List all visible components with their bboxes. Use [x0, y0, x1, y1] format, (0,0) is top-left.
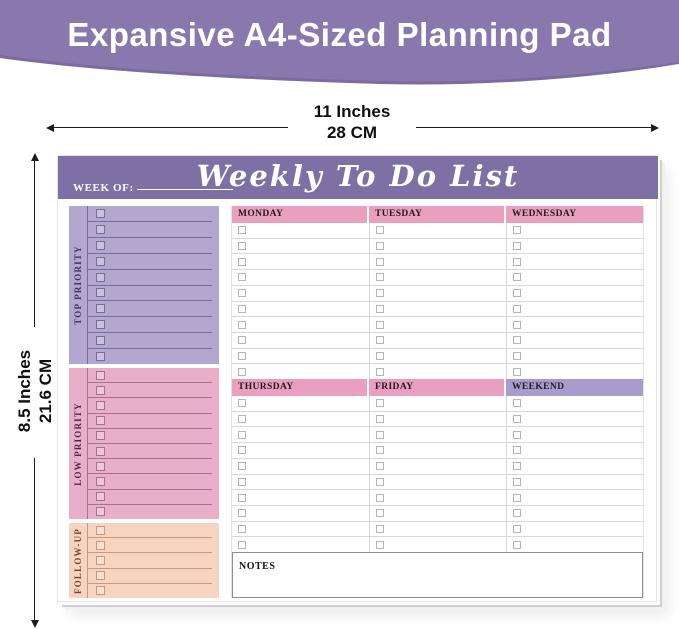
checkbox-icon [513, 242, 521, 250]
day-column-weekend: WEEKEND [506, 379, 643, 552]
checklist-row [232, 396, 369, 412]
checklist-row [507, 396, 643, 412]
checkbox-icon [513, 446, 521, 454]
checkbox-icon [238, 258, 246, 266]
weekend-rows [506, 396, 643, 552]
height-dimension-label: 8.5 Inches 21.6 CM [14, 326, 56, 456]
checkbox-icon [96, 571, 105, 580]
checklist-row [232, 223, 369, 239]
checklist-row [88, 349, 212, 364]
checklist-row [507, 412, 643, 428]
arrowhead-up-icon [31, 153, 39, 161]
checkbox-icon [96, 462, 105, 471]
checklist-row [370, 506, 506, 522]
week-grid: MONDAY TUESDAY WEDNESDAY THURSDAY [231, 206, 644, 598]
checklist-row [232, 364, 369, 379]
week-of-field: WEEK OF: [73, 182, 233, 194]
notes-box: NOTES [232, 552, 643, 598]
checklist-row [88, 474, 212, 489]
arrowhead-down-icon [31, 620, 39, 628]
width-arrow-line-right [416, 127, 654, 128]
checklist-row [507, 459, 643, 475]
checkbox-icon [376, 541, 384, 549]
checkbox-icon [238, 368, 246, 376]
checklist-row [507, 333, 643, 349]
checkbox-icon [513, 509, 521, 517]
friday-header: FRIDAY [369, 379, 504, 396]
checkbox-icon [96, 273, 105, 282]
checkbox-icon [238, 336, 246, 344]
banner-title: Expansive A4-Sized Planning Pad [0, 16, 679, 54]
checklist-row [232, 412, 369, 428]
checkbox-icon [513, 258, 521, 266]
section-follow-up: FOLLOW-UP [69, 523, 219, 598]
checklist-row [232, 333, 369, 349]
checklist-row [507, 270, 643, 286]
checkbox-icon [96, 304, 105, 313]
checkbox-icon [96, 492, 105, 501]
checkbox-icon [96, 477, 105, 486]
checkbox-icon [376, 226, 384, 234]
checkbox-icon [96, 336, 105, 345]
checkbox-icon [96, 320, 105, 329]
checklist-row [88, 414, 212, 429]
checklist-row [370, 490, 506, 506]
checkbox-icon [513, 415, 521, 423]
checklist-row [370, 286, 506, 302]
checklist-row [232, 490, 369, 506]
checkbox-icon [96, 352, 105, 361]
checklist-row [88, 206, 212, 222]
checklist-row [507, 254, 643, 270]
checklist-row [507, 490, 643, 506]
checkbox-icon [96, 447, 105, 456]
monday-header: MONDAY [232, 206, 367, 223]
checklist-row [88, 429, 212, 444]
checklist-row [232, 427, 369, 443]
day-column-tuesday: TUESDAY [369, 206, 506, 379]
checkbox-icon [376, 431, 384, 439]
day-block-mon-wed: MONDAY TUESDAY WEDNESDAY [232, 206, 643, 379]
width-inches-label: 11 Inches [282, 101, 422, 122]
checkbox-icon [96, 241, 105, 250]
checkbox-icon [238, 494, 246, 502]
checkbox-icon [96, 431, 105, 440]
checkbox-icon [96, 288, 105, 297]
checklist-row [88, 238, 212, 254]
checkbox-icon [513, 289, 521, 297]
checkbox-icon [376, 399, 384, 407]
checklist-row [232, 317, 369, 333]
top-priority-rows [88, 206, 219, 364]
low-priority-rows [88, 368, 219, 519]
checkbox-icon [513, 305, 521, 313]
day-column-monday: MONDAY [232, 206, 369, 379]
checklist-row [88, 286, 212, 302]
width-dimension-label: 11 Inches 28 CM [282, 101, 422, 143]
checklist-row [88, 383, 212, 398]
checklist-row [507, 317, 643, 333]
checkbox-icon [238, 352, 246, 360]
checkbox-icon [513, 336, 521, 344]
thursday-header: THURSDAY [232, 379, 367, 396]
checklist-row [370, 412, 506, 428]
checkbox-icon [96, 416, 105, 425]
thursday-rows [232, 396, 369, 552]
checkbox-icon [238, 509, 246, 517]
checkbox-icon [96, 556, 105, 565]
checklist-row [507, 506, 643, 522]
checkbox-icon [96, 209, 105, 218]
checkbox-icon [96, 541, 105, 550]
checklist-row [232, 506, 369, 522]
checklist-row [507, 475, 643, 491]
low-priority-label: LOW PRIORITY [73, 402, 83, 486]
checkbox-icon [238, 415, 246, 423]
checklist-row [88, 301, 212, 317]
week-of-label: WEEK OF: [73, 182, 134, 194]
checklist-row [232, 443, 369, 459]
checkbox-icon [96, 371, 105, 380]
checkbox-icon [513, 494, 521, 502]
checklist-row [507, 302, 643, 318]
week-of-blank-line [137, 189, 233, 190]
checkbox-icon [376, 321, 384, 329]
height-arrow-line-top [34, 159, 35, 327]
product-image: Expansive A4-Sized Planning Pad 11 Inche… [0, 0, 679, 629]
arrowhead-right-icon [651, 124, 659, 132]
checkbox-icon [376, 289, 384, 297]
checkbox-icon [376, 462, 384, 470]
checklist-row [507, 223, 643, 239]
monday-rows [232, 223, 369, 379]
checkbox-icon [376, 258, 384, 266]
checkbox-icon [513, 352, 521, 360]
checklist-row [232, 270, 369, 286]
follow-up-label: FOLLOW-UP [73, 528, 83, 594]
checklist-row [88, 398, 212, 413]
checkbox-icon [513, 478, 521, 486]
checkbox-icon [376, 415, 384, 423]
checklist-row [232, 286, 369, 302]
checklist-row [370, 239, 506, 255]
checklist-row [370, 333, 506, 349]
checkbox-icon [238, 289, 246, 297]
checkbox-icon [376, 478, 384, 486]
checklist-row [232, 239, 369, 255]
checkbox-icon [513, 226, 521, 234]
wednesday-header: WEDNESDAY [506, 206, 643, 223]
height-arrow-line-bottom [34, 458, 35, 622]
checkbox-icon [376, 352, 384, 360]
checklist-row [88, 490, 212, 505]
checkbox-icon [238, 431, 246, 439]
checkbox-icon [238, 462, 246, 470]
checkbox-icon [513, 273, 521, 281]
checklist-row [88, 222, 212, 238]
checkbox-icon [238, 541, 246, 549]
notes-label: NOTES [239, 561, 275, 572]
checkbox-icon [238, 305, 246, 313]
section-label-strip: TOP PRIORITY [69, 206, 88, 364]
checklist-row [370, 317, 506, 333]
checkbox-icon [513, 399, 521, 407]
checkbox-icon [96, 225, 105, 234]
checklist-row [232, 537, 369, 552]
checklist-row [232, 475, 369, 491]
checkbox-icon [238, 226, 246, 234]
checkbox-icon [376, 368, 384, 376]
checklist-row [507, 537, 643, 552]
width-cm-label: 28 CM [282, 122, 422, 143]
follow-up-rows [88, 523, 219, 598]
checkbox-icon [238, 273, 246, 281]
width-arrow-line-left [52, 127, 288, 128]
checkbox-icon [238, 242, 246, 250]
checklist-row [370, 396, 506, 412]
section-label-strip: FOLLOW-UP [69, 523, 88, 598]
day-block-thu-weekend: THURSDAY FRIDAY WEEKEND [232, 379, 643, 552]
checklist-row [370, 302, 506, 318]
day-column-wednesday: WEDNESDAY [506, 206, 643, 379]
checkbox-icon [376, 525, 384, 533]
wednesday-rows [506, 223, 643, 379]
checklist-row [370, 349, 506, 365]
checkbox-icon [96, 386, 105, 395]
checkbox-icon [513, 525, 521, 533]
checklist-row [507, 443, 643, 459]
checklist-row [370, 459, 506, 475]
planning-pad: Weekly To Do List WEEK OF: TOP PRIORITY … [57, 155, 657, 602]
tuesday-header: TUESDAY [369, 206, 504, 223]
section-top-priority: TOP PRIORITY [69, 206, 219, 364]
checklist-row [88, 505, 212, 519]
checklist-row [88, 523, 212, 538]
checklist-row [370, 443, 506, 459]
checkbox-icon [376, 494, 384, 502]
checkbox-icon [513, 541, 521, 549]
checkbox-icon [376, 509, 384, 517]
checklist-row [370, 475, 506, 491]
section-low-priority: LOW PRIORITY [69, 368, 219, 519]
checklist-row [370, 537, 506, 552]
checkbox-icon [513, 368, 521, 376]
checklist-row [370, 364, 506, 379]
friday-rows [369, 396, 506, 552]
checklist-row [370, 254, 506, 270]
checkbox-icon [513, 321, 521, 329]
checklist-row [232, 459, 369, 475]
height-inches-label: 8.5 Inches [14, 326, 35, 456]
weekend-header: WEEKEND [506, 379, 643, 396]
tuesday-rows [369, 223, 506, 379]
checkbox-icon [376, 273, 384, 281]
checkbox-icon [96, 401, 105, 410]
checklist-row [88, 569, 212, 584]
checklist-row [232, 302, 369, 318]
checklist-row [88, 333, 212, 349]
checklist-row [370, 522, 506, 538]
checklist-row [370, 270, 506, 286]
checkbox-icon [376, 336, 384, 344]
checklist-row [88, 459, 212, 474]
checklist-row [88, 317, 212, 333]
checklist-row [88, 368, 212, 383]
checklist-row [88, 254, 212, 270]
checkbox-icon [376, 305, 384, 313]
checklist-row [507, 239, 643, 255]
checkbox-icon [96, 526, 105, 535]
checkbox-icon [96, 586, 105, 595]
checkbox-icon [376, 446, 384, 454]
checklist-row [370, 223, 506, 239]
checkbox-icon [238, 321, 246, 329]
checkbox-icon [513, 462, 521, 470]
checklist-row [88, 444, 212, 459]
checklist-row [507, 349, 643, 365]
checklist-row [88, 553, 212, 568]
checklist-row [507, 522, 643, 538]
checklist-row [232, 522, 369, 538]
checklist-row [88, 538, 212, 553]
section-label-strip: LOW PRIORITY [69, 368, 88, 519]
top-priority-label: TOP PRIORITY [73, 245, 83, 325]
checklist-row [232, 254, 369, 270]
checklist-row [370, 427, 506, 443]
checkbox-icon [96, 507, 105, 516]
checklist-row [88, 584, 212, 598]
checklist-row [507, 427, 643, 443]
day-column-thursday: THURSDAY [232, 379, 369, 552]
checkbox-icon [238, 478, 246, 486]
checklist-row [232, 349, 369, 365]
checkbox-icon [238, 399, 246, 407]
checkbox-icon [513, 431, 521, 439]
arrowhead-left-icon [46, 124, 54, 132]
checkbox-icon [238, 525, 246, 533]
checklist-row [507, 286, 643, 302]
checkbox-icon [238, 446, 246, 454]
checkbox-icon [376, 242, 384, 250]
height-cm-label: 21.6 CM [35, 326, 56, 456]
day-column-friday: FRIDAY [369, 379, 506, 552]
checklist-row [507, 364, 643, 379]
checkbox-icon [96, 257, 105, 266]
checklist-row [88, 270, 212, 286]
pad-header: Weekly To Do List WEEK OF: [58, 156, 658, 199]
banner: Expansive A4-Sized Planning Pad [0, 0, 679, 92]
